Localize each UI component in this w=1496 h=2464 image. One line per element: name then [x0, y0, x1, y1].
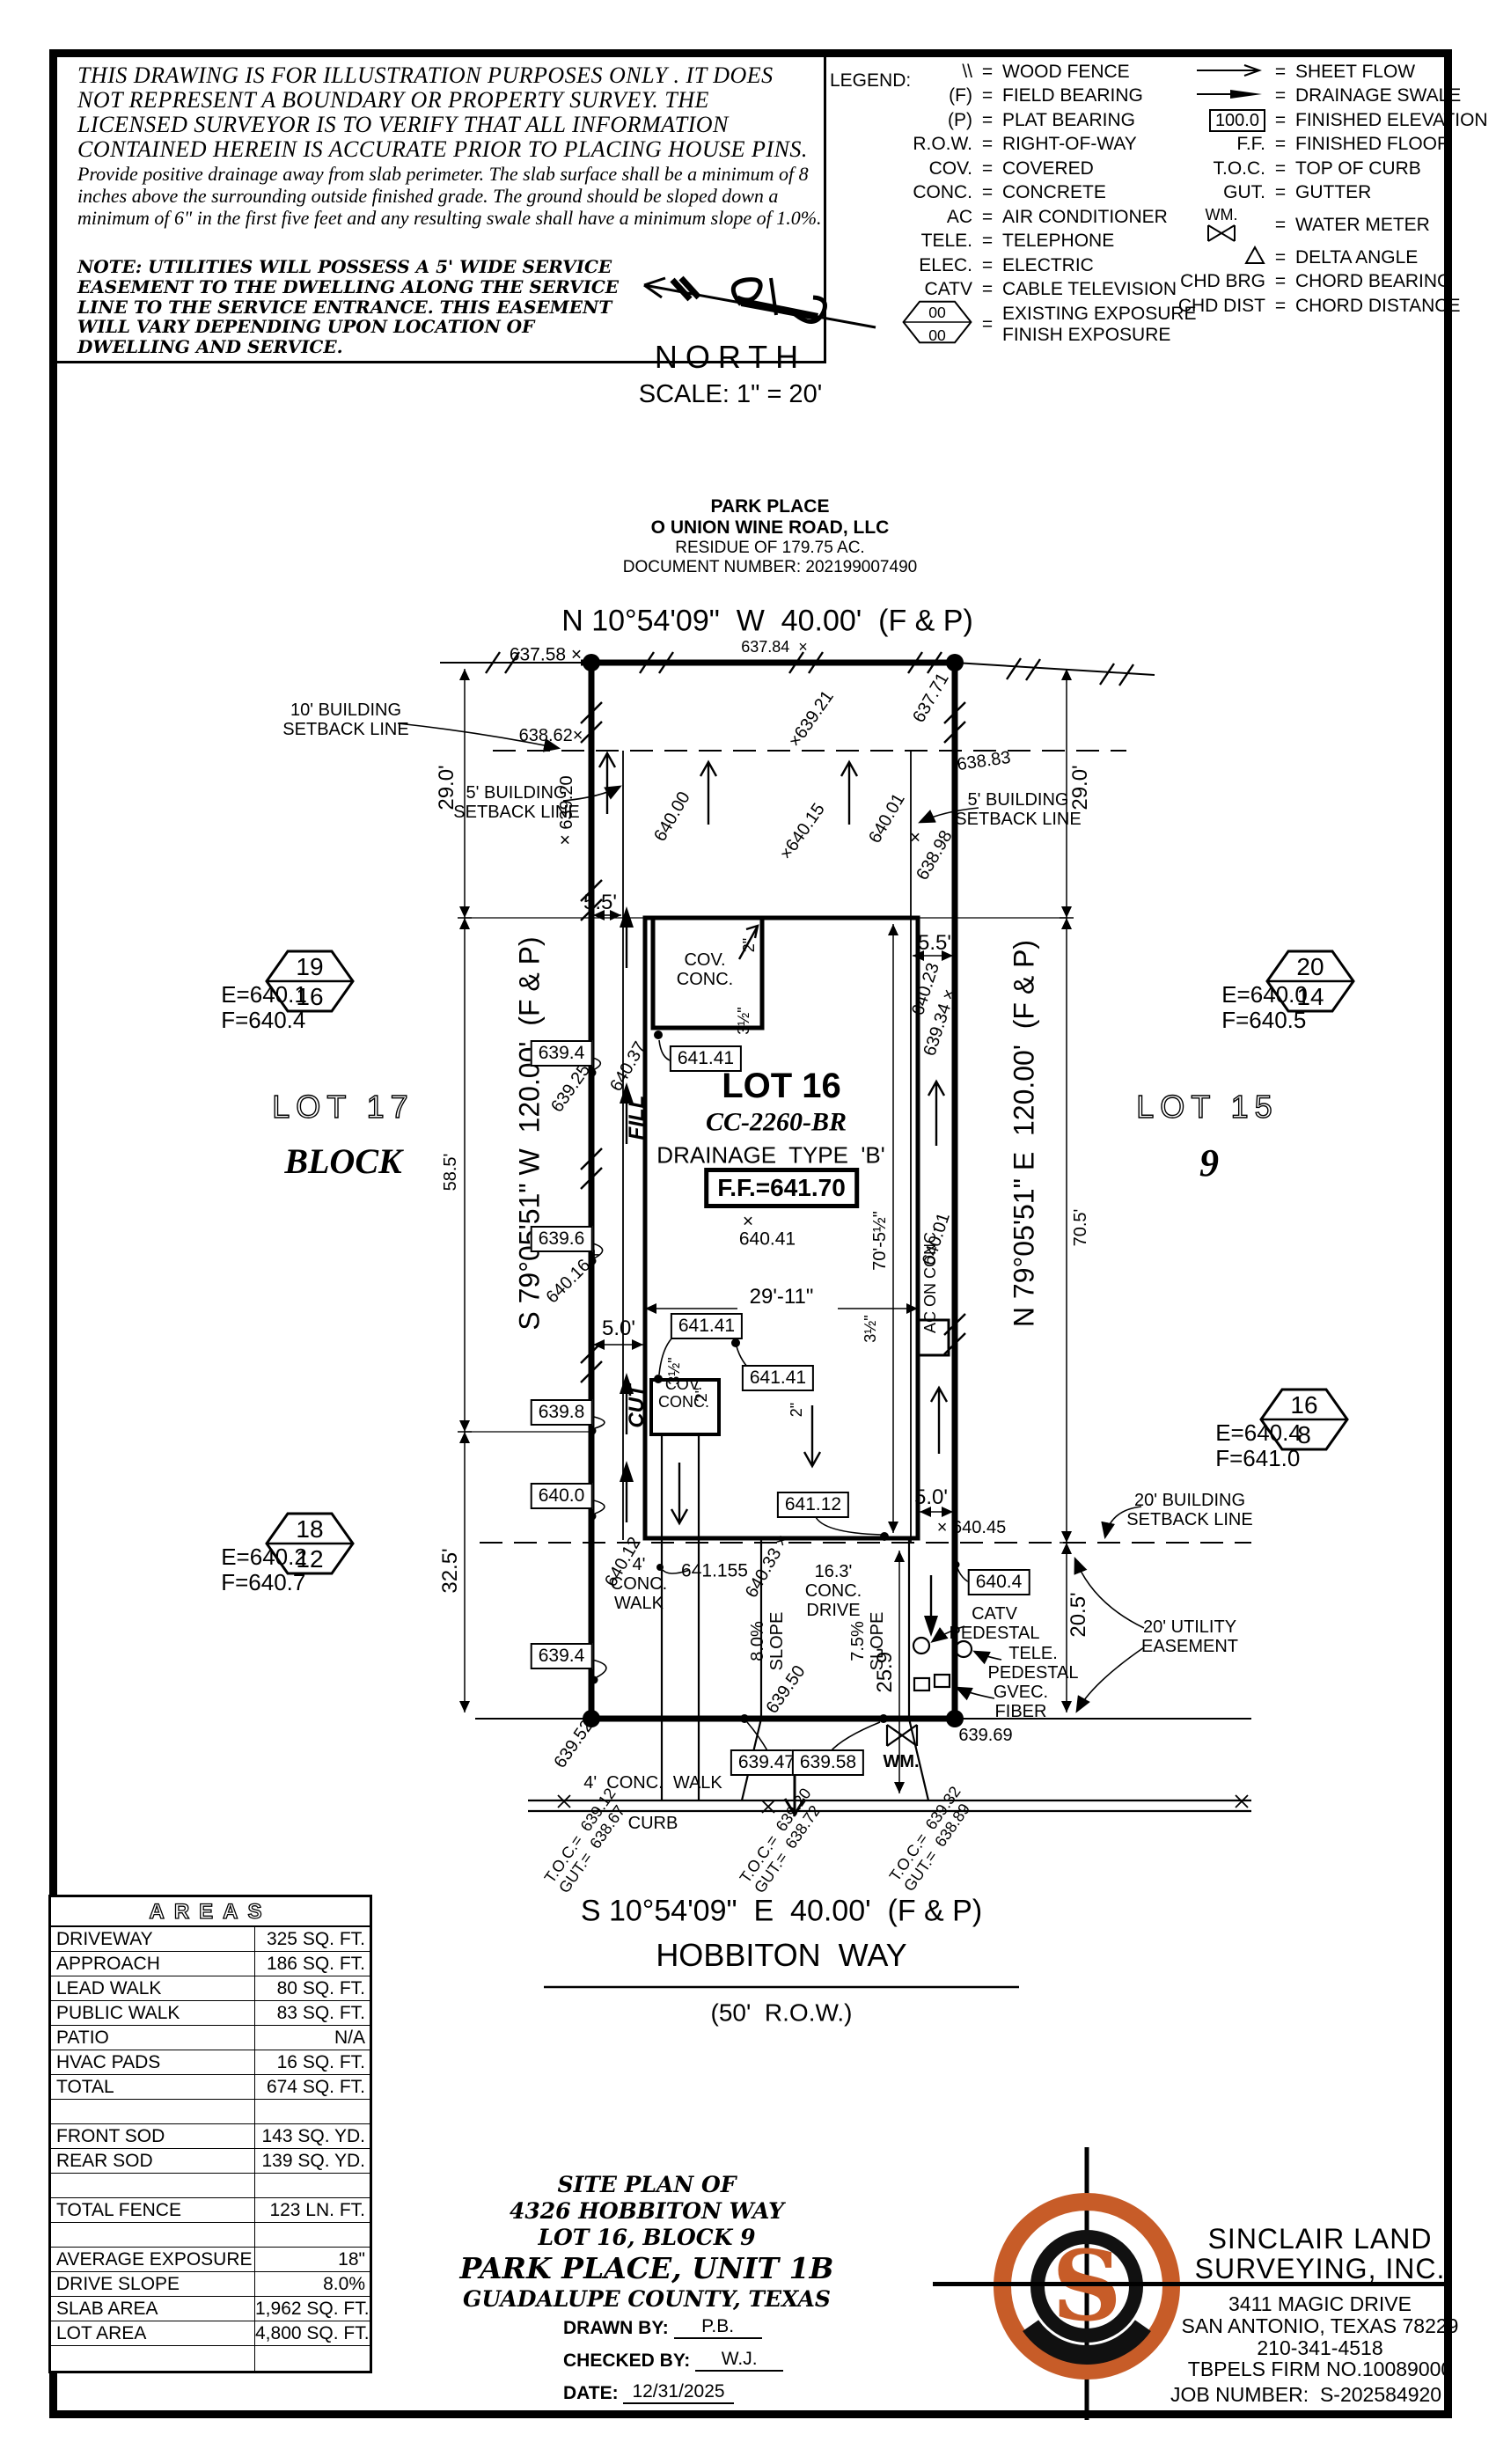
plan-label: 5.5' — [918, 932, 951, 955]
public-walk — [528, 1800, 1251, 1811]
plan-label: FILL — [626, 1096, 649, 1140]
legend-row: COV.=COVERED — [884, 157, 1197, 181]
plan-label: N 79°05'51" E 120.00' (F & P) — [1008, 940, 1039, 1327]
finished-elevation-box: 641.12 — [777, 1492, 849, 1518]
plan-label: 5.0' — [602, 1317, 635, 1340]
areas-table-row: REAR SOD139 SQ. YD. — [51, 2149, 370, 2174]
checked-by-label: CHECKED BY: — [563, 2350, 690, 2372]
drainage-swale-arrows — [620, 906, 938, 1637]
plan-label: CC-2260-BR — [706, 1108, 847, 1137]
areas-table-row: DRIVEWAY325 SQ. FT. — [51, 1927, 370, 1952]
plan-label: DRAINAGE TYPE 'B' — [656, 1143, 884, 1169]
plan-label: LOT 17 — [272, 1089, 414, 1125]
scale-label: SCALE: 1" = 20' — [581, 380, 880, 409]
areas-table-row: LEAD WALK80 SQ. FT. — [51, 1976, 370, 2001]
plan-label: 70.5' — [1071, 1209, 1090, 1247]
north-label: NORTH — [616, 339, 845, 376]
plan-label: 9 — [1199, 1142, 1219, 1184]
north-arrow-icon — [607, 262, 889, 334]
firm-name-line1: SINCLAIR LAND — [1179, 2225, 1461, 2255]
plan-label: CATV PEDESTAL — [950, 1604, 1040, 1643]
job-number: JOB NUMBER: S-202584920 — [1170, 2383, 1461, 2407]
areas-table-row: TOTAL FENCE123 LN. FT. — [51, 2198, 370, 2223]
plan-label: 20.5' — [1067, 1592, 1090, 1637]
finished-elevation-box: 641.41 — [671, 1313, 743, 1339]
exposure-values: E=640.1 F=640.4 — [221, 982, 307, 1033]
catv-pedestal-icon — [913, 1638, 929, 1654]
plan-label: CUT — [626, 1384, 649, 1427]
plan-label: LOT 15 — [1136, 1089, 1278, 1125]
title-lot-block: LOT 16, BLOCK 9 — [449, 2225, 845, 2251]
plan-label: 3½" — [862, 1315, 880, 1342]
owner-document: DOCUMENT NUMBER: 202199007490 — [607, 558, 933, 577]
legend-row: 100.0=FINISHED ELEVATION — [1177, 108, 1488, 133]
legend-row: GUT.=GUTTER — [1177, 181, 1488, 206]
legend-row: TELE.=TELEPHONE — [884, 230, 1197, 254]
legend-row: \\=WOOD FENCE — [884, 60, 1197, 84]
plan-label: LOT 16 — [722, 1067, 841, 1105]
plan-label: S 79°05'51" W 120.00' (F & P) — [514, 936, 545, 1330]
plan-label: N 10°54'09" W 40.00' (F & P) — [561, 605, 973, 637]
plan-label: 32.5' — [439, 1548, 462, 1593]
finished-elevation-box: 641.41 — [670, 1045, 742, 1072]
water-meter-legend-icon: WM. — [1177, 207, 1265, 244]
date-label: DATE: — [563, 2383, 619, 2404]
plan-label: 641.155 — [681, 1560, 748, 1580]
gvec-fiber-icon — [935, 1675, 950, 1687]
exposure-values: E=640.2 F=640.7 — [221, 1544, 307, 1595]
areas-table-row — [51, 2100, 370, 2124]
date-value: 12/31/2025 — [623, 2381, 733, 2404]
legend-row: ELEC.=ELECTRIC — [884, 253, 1197, 278]
site-plan-sheet: THIS DRAWING IS FOR ILLUSTRATION PURPOSE… — [0, 0, 1496, 2464]
tele-pedestal-icon — [956, 1641, 972, 1657]
plan-label: 29.0' — [436, 765, 458, 810]
plan-label: CURB — [628, 1814, 678, 1833]
areas-table-row: TOTAL674 SQ. FT. — [51, 2075, 370, 2100]
areas-table: AREAS DRIVEWAY325 SQ. FT.APPROACH186 SQ.… — [48, 1895, 372, 2373]
plan-label: COV. CONC. — [677, 950, 733, 989]
firm-city: SAN ANTONIO, TEXAS 78229 — [1179, 2315, 1461, 2337]
areas-table-row: HVAC PADS16 SQ. FT. — [51, 2050, 370, 2075]
exposure-values: E=640.0 F=640.5 — [1221, 982, 1308, 1033]
plan-label: HOBBITON WAY — [656, 1938, 906, 1973]
plan-label: 2" — [741, 938, 759, 952]
legend-row: CONC.=CONCRETE — [884, 181, 1197, 206]
plan-label: COV. CONC. — [658, 1376, 709, 1412]
owner-llc: O UNION WINE ROAD, LLC — [607, 517, 933, 539]
legend-left-column: \\=WOOD FENCE(F)=FIELD BEARING(P)=PLAT B… — [884, 60, 1197, 348]
svg-text:20: 20 — [1296, 953, 1324, 980]
drainage-swale-icon — [1195, 87, 1265, 101]
areas-table-row: PUBLIC WALK83 SQ. FT. — [51, 2001, 370, 2026]
areas-table-row: FRONT SOD143 SQ. YD. — [51, 2124, 370, 2149]
areas-table-row: APPROACH186 SQ. FT. — [51, 1952, 370, 1976]
plan-label: 5.5' — [583, 891, 617, 914]
site-plan-drawing: N 10°54'09" W 40.00' (F & P)S 10°54'09" … — [0, 581, 1496, 2094]
svg-text:16: 16 — [1290, 1391, 1317, 1419]
legend-row: AC=AIR CONDITIONER — [884, 205, 1197, 230]
svg-text:19: 19 — [296, 953, 323, 980]
plan-label: TELE. PEDESTAL — [988, 1644, 1079, 1683]
firm-name-line2: SURVEYING, INC. — [1179, 2255, 1461, 2284]
exposure-hex-icon: 0000 — [902, 300, 972, 344]
exposure-values: E=640.4 F=641.0 — [1215, 1420, 1302, 1471]
legend-row: 0000=EXISTING EXPOSURE FINISH EXPOSURE — [884, 302, 1197, 348]
areas-table-title: AREAS — [51, 1897, 370, 1927]
plan-label: (50' R.O.W.) — [711, 2000, 853, 2028]
adjoiner-owner-block: PARK PLACE O UNION WINE ROAD, LLC RESIDU… — [607, 496, 933, 577]
plan-label: 638.62× — [519, 726, 583, 745]
legend-row: CHD BRG=CHORD BEARING — [1177, 270, 1488, 295]
title-subdivision: PARK PLACE, UNIT 1B — [449, 2251, 845, 2286]
plan-label: 5.0' — [914, 1486, 948, 1509]
plan-label: 8.0% SLOPE — [748, 1612, 787, 1671]
plan-label: 10' BUILDING SETBACK LINE — [282, 700, 408, 739]
disclaimer-illustration: THIS DRAWING IS FOR ILLUSTRATION PURPOSE… — [77, 63, 815, 162]
plan-label: BLOCK — [284, 1142, 401, 1181]
plan-label: 3½" — [736, 1007, 753, 1034]
plan-label: GVEC. FIBER — [994, 1683, 1048, 1721]
disclaimer-drainage: Provide positive drainage away from slab… — [77, 164, 822, 230]
plan-label: 29'-11" — [750, 1286, 814, 1309]
plan-label: 5' BUILDING SETBACK LINE — [955, 790, 1081, 829]
firm-street: 3411 MAGIC DRIVE — [1179, 2293, 1461, 2315]
legend-row: (P)=PLAT BEARING — [884, 108, 1197, 133]
firm-registration: TBPELS FIRM NO.10089000 — [1179, 2358, 1461, 2380]
owner-residue: RESIDUE OF 179.75 AC. — [607, 539, 933, 558]
checked-by-value: W.J. — [695, 2349, 783, 2372]
finished-elevation-box: 639.4 — [531, 1643, 593, 1669]
legend-row: CATV=CABLE TELEVISION — [884, 278, 1197, 303]
owner-name: PARK PLACE — [607, 496, 933, 517]
plan-label: 640.41 — [739, 1228, 796, 1249]
finished-floor-box: F.F.=641.70 — [704, 1168, 859, 1208]
svg-text:00: 00 — [928, 304, 946, 321]
plan-label: 29.0' — [1069, 765, 1092, 810]
plan-label: × — [910, 827, 920, 847]
areas-table-row: DRIVE SLOPE8.0% — [51, 2272, 370, 2297]
legend-row: =SHEET FLOW — [1177, 60, 1488, 84]
plan-label: × 640.45 — [937, 1518, 1006, 1537]
title-line: SITE PLAN OF — [449, 2172, 845, 2198]
title-block: SITE PLAN OF 4326 HOBBITON WAY LOT 16, B… — [449, 2172, 845, 2313]
legend-row: =DRAINAGE SWALE — [1177, 84, 1488, 109]
legend-row: =DELTA ANGLE — [1177, 246, 1488, 270]
legend-row: WM.=WATER METER — [1177, 205, 1488, 246]
plan-label: 58.5' — [441, 1154, 460, 1192]
plan-label: 639.69 — [958, 1726, 1012, 1745]
areas-table-row — [51, 2346, 370, 2371]
areas-table-row: SLAB AREA1,962 SQ. FT. — [51, 2297, 370, 2321]
legend-row: CHD DIST=CHORD DISTANCE — [1177, 294, 1488, 319]
plan-label: 20' BUILDING SETBACK LINE — [1126, 1491, 1252, 1529]
plan-label: 70'-5½" — [870, 1211, 890, 1271]
areas-table-row: PATION/A — [51, 2026, 370, 2050]
finished-elevation-box: 640.0 — [531, 1483, 593, 1509]
areas-table-row: LOT AREA4,800 SQ. FT. — [51, 2321, 370, 2346]
title-address: 4326 HOBBITON WAY — [449, 2198, 845, 2225]
legend-row: R.O.W.=RIGHT-OF-WAY — [884, 133, 1197, 158]
areas-table-row — [51, 2174, 370, 2198]
finished-elevation-box: 639.58 — [792, 1749, 864, 1776]
house-footprint — [645, 918, 949, 1538]
firm-address: 3411 MAGIC DRIVE SAN ANTONIO, TEXAS 7822… — [1179, 2293, 1461, 2380]
plan-label: 2" — [788, 1403, 806, 1417]
finished-elevation-box: 640.4 — [968, 1569, 1030, 1595]
plan-label: WM. — [883, 1752, 919, 1771]
finished-elevation-box: 639.6 — [531, 1226, 593, 1252]
finished-elevation-box: 641.41 — [742, 1365, 814, 1391]
legend-right-column: =SHEET FLOW=DRAINAGE SWALE100.0=FINISHED… — [1177, 60, 1488, 319]
legend-row: (F)=FIELD BEARING — [884, 84, 1197, 109]
areas-table-row — [51, 2223, 370, 2248]
legend-row: F.F.=FINISHED FLOOR — [1177, 133, 1488, 158]
title-county: GUADALUPE COUNTY, TEXAS — [449, 2286, 845, 2313]
finished-elevation-box: 639.4 — [531, 1040, 593, 1067]
plan-label: 639.20 — [557, 775, 576, 829]
disclaimer-utilities-note: NOTE: UTILITIES WILL POSSESS A 5' WIDE S… — [77, 257, 641, 357]
plan-label: 7.5% SLOPE — [848, 1612, 887, 1671]
firm-name: SINCLAIR LAND SURVEYING, INC. — [1179, 2225, 1461, 2284]
plan-label: 20' UTILITY EASEMENT — [1141, 1617, 1238, 1656]
areas-table-row: AVERAGE EXPOSURE18" — [51, 2248, 370, 2272]
delta-angle-icon — [1244, 246, 1265, 265]
plan-label: 637.84 × — [741, 639, 808, 656]
plan-label: S 10°54'09" E 40.00' (F & P) — [581, 1895, 982, 1927]
signoff-block: DRAWN BY: P.B. CHECKED BY: W.J. DATE: 12… — [563, 2316, 845, 2414]
drawn-by-value: P.B. — [674, 2316, 762, 2339]
plan-label: 637.58 × — [510, 644, 582, 664]
drawn-by-label: DRAWN BY: — [563, 2318, 669, 2339]
sheet-flow-icon — [1195, 63, 1265, 77]
svg-text:18: 18 — [296, 1515, 323, 1543]
gvec-fiber-icon — [914, 1678, 929, 1690]
svg-text:00: 00 — [928, 326, 946, 344]
legend-row: T.O.C.=TOP OF CURB — [1177, 157, 1488, 181]
plan-label: × — [560, 830, 570, 850]
finished-elevation-box: 639.8 — [531, 1399, 593, 1426]
firm-phone: 210-341-4518 — [1179, 2337, 1461, 2359]
